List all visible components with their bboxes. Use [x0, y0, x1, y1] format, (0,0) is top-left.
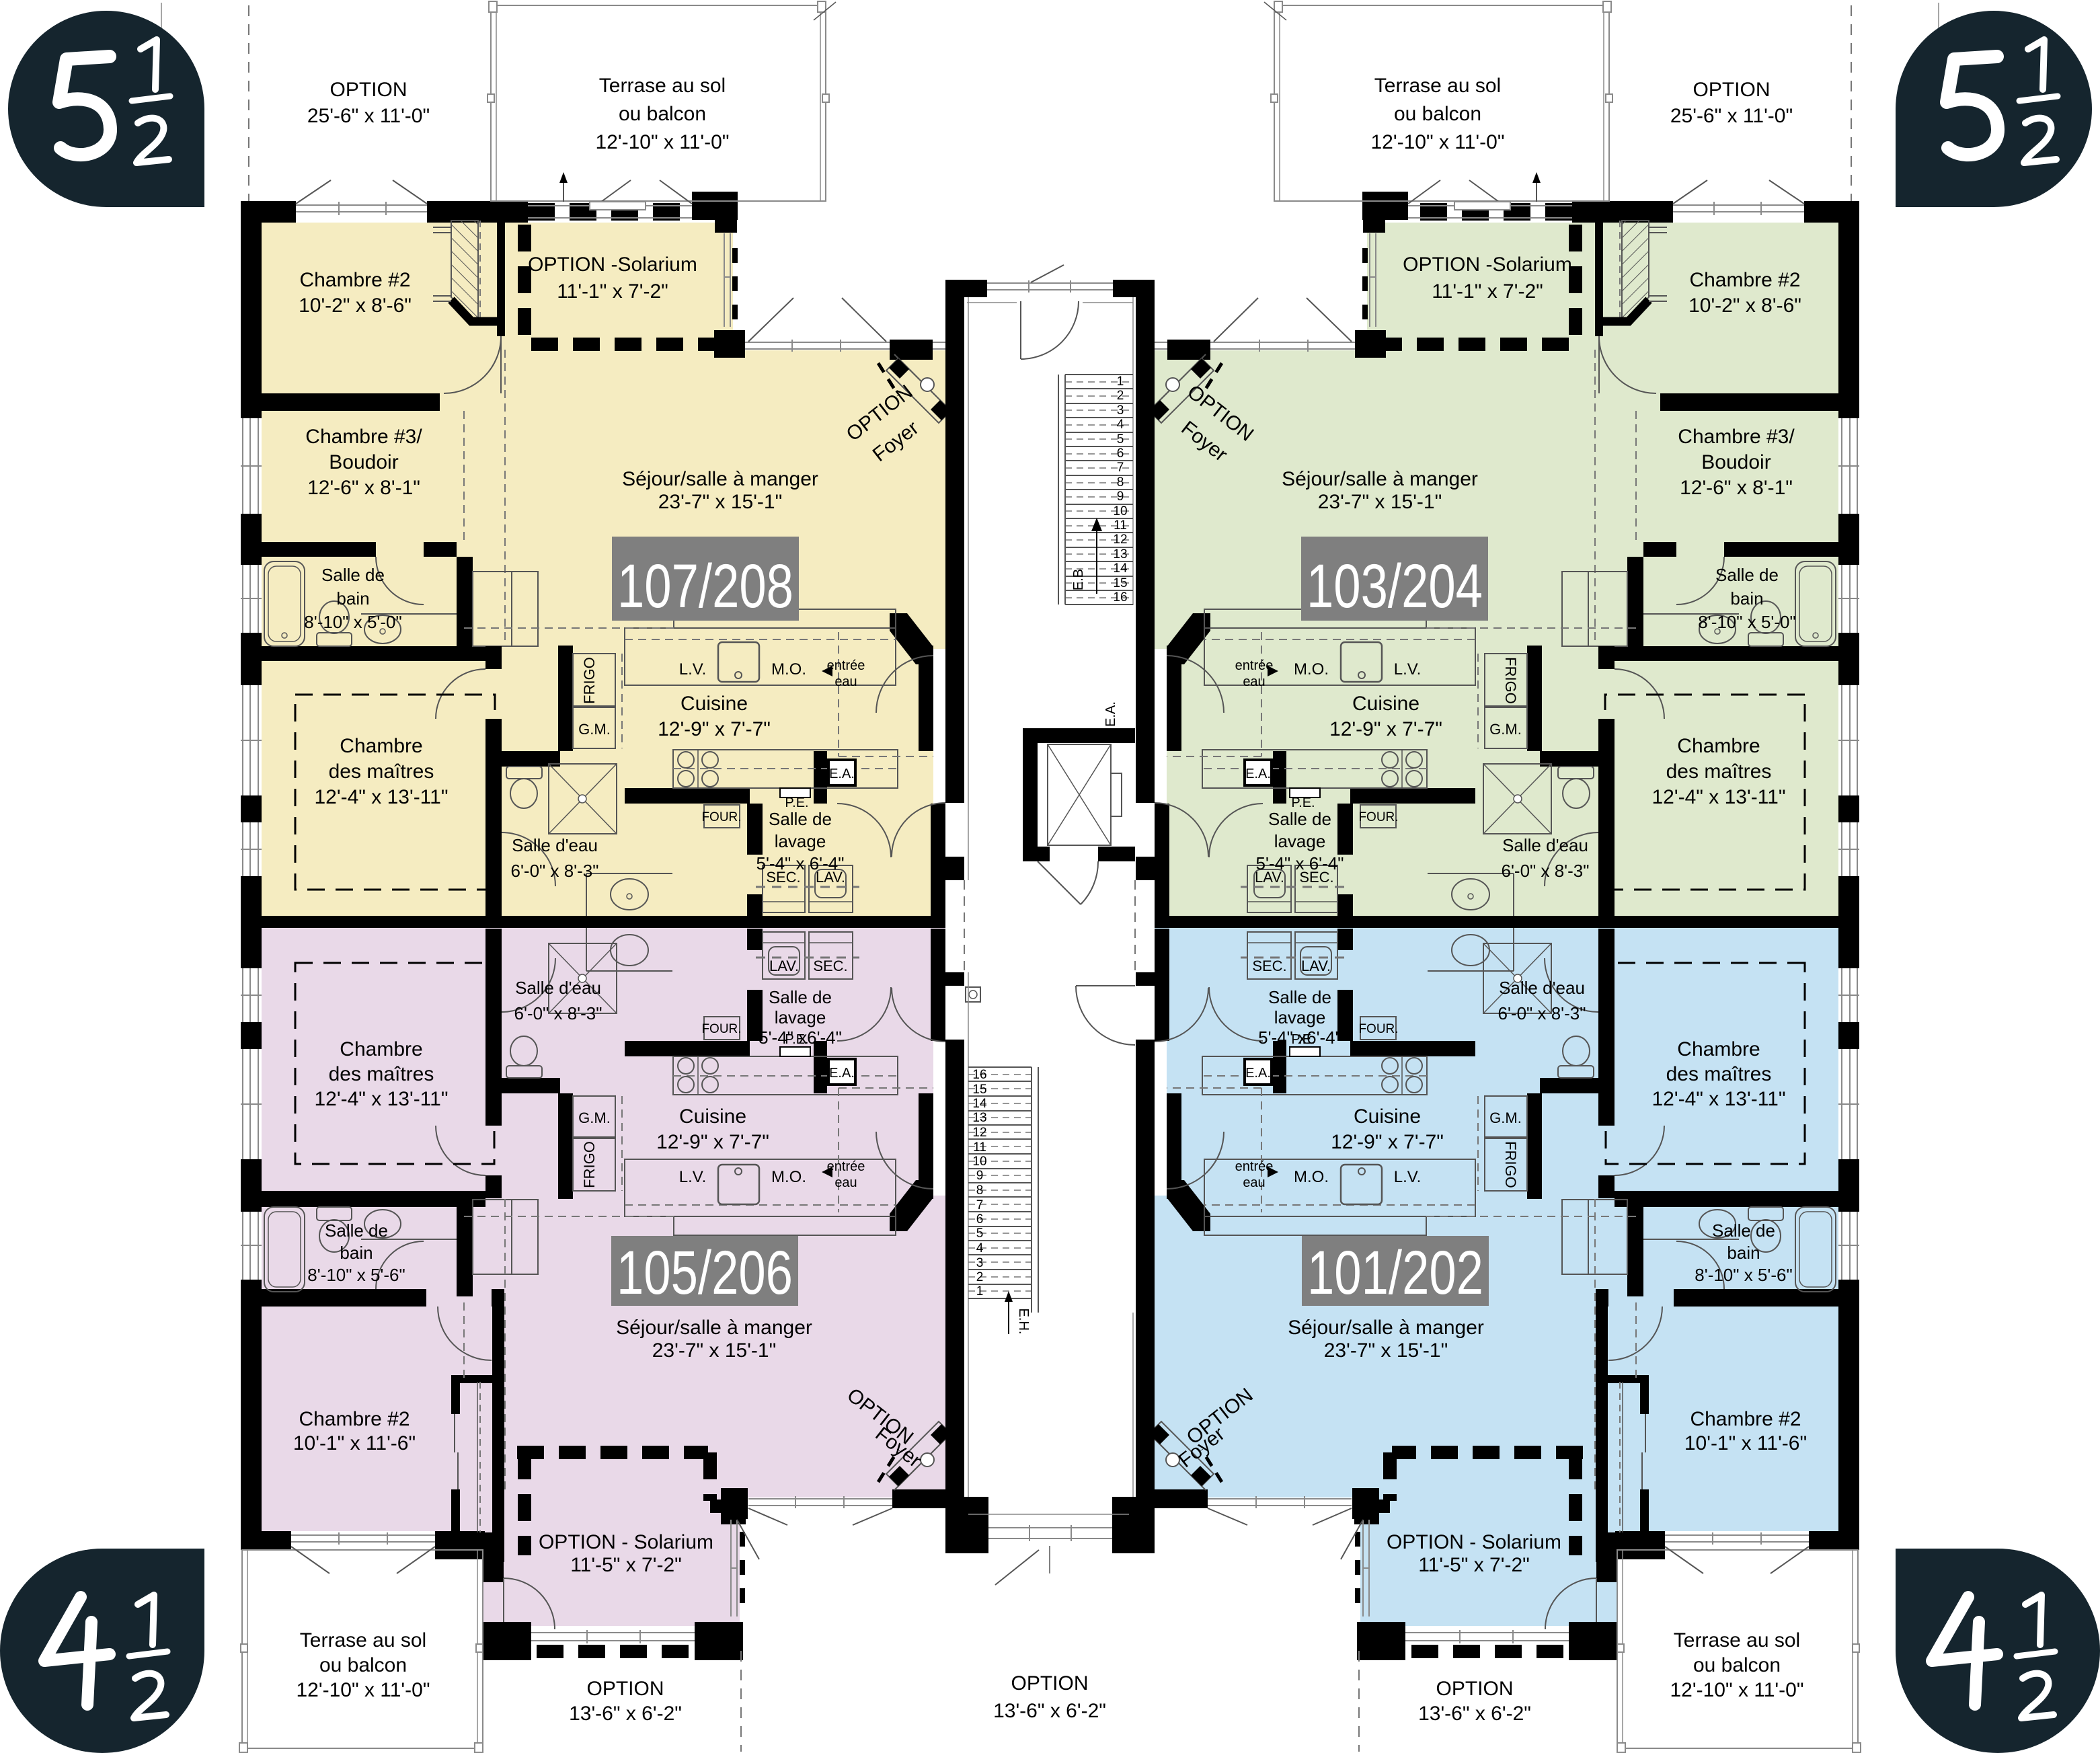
- svg-text:Chambre #3/: Chambre #3/: [1678, 426, 1795, 448]
- svg-text:23'-7" x 15'-1": 23'-7" x 15'-1": [1318, 491, 1442, 513]
- svg-text:bain: bain: [1730, 588, 1763, 609]
- svg-text:23'-7" x 15'-1": 23'-7" x 15'-1": [658, 491, 783, 513]
- svg-text:4: 4: [976, 1241, 984, 1255]
- svg-text:12: 12: [972, 1126, 986, 1140]
- svg-text:eau: eau: [1243, 674, 1265, 689]
- svg-text:9: 9: [976, 1169, 984, 1183]
- svg-text:LAV.: LAV.: [816, 869, 845, 886]
- svg-text:Chambre #2: Chambre #2: [299, 1408, 410, 1430]
- svg-text:2: 2: [976, 1270, 984, 1284]
- svg-text:3: 3: [1117, 403, 1124, 418]
- svg-text:12'-4" x 13'-11": 12'-4" x 13'-11": [1652, 786, 1786, 808]
- svg-text:15: 15: [1113, 576, 1127, 590]
- svg-text:G.M.: G.M.: [1489, 721, 1522, 738]
- svg-text:5: 5: [1117, 432, 1124, 446]
- svg-text:13: 13: [972, 1111, 986, 1125]
- svg-text:OPTION - Solarium: OPTION - Solarium: [1387, 1531, 1561, 1553]
- svg-text:E.B: E.B: [1071, 569, 1086, 590]
- svg-text:25'-6" x 11'-0": 25'-6" x 11'-0": [1670, 105, 1793, 127]
- svg-text:Salle de: Salle de: [325, 1220, 388, 1241]
- svg-text:12'-9" x 7'-7": 12'-9" x 7'-7": [658, 718, 771, 740]
- svg-text:Séjour/salle à manger: Séjour/salle à manger: [616, 1317, 812, 1339]
- svg-text:FRIGO: FRIGO: [1502, 657, 1519, 704]
- svg-text:lavage: lavage: [1274, 831, 1326, 851]
- svg-text:3: 3: [976, 1256, 984, 1270]
- svg-text:M.O.: M.O.: [1294, 660, 1329, 678]
- svg-text:Boudoir: Boudoir: [329, 451, 398, 473]
- svg-text:7: 7: [1117, 461, 1124, 475]
- svg-text:FOUR.: FOUR.: [701, 810, 741, 824]
- svg-text:ou balcon: ou balcon: [319, 1654, 407, 1676]
- svg-text:E.A.: E.A.: [829, 767, 855, 781]
- svg-text:8: 8: [1117, 475, 1124, 490]
- svg-text:4: 4: [1117, 418, 1124, 432]
- svg-text:11: 11: [973, 1140, 986, 1155]
- svg-text:eau: eau: [1243, 1175, 1265, 1190]
- svg-text:Chambre: Chambre: [340, 735, 422, 757]
- svg-text:12'-9" x 7'-7": 12'-9" x 7'-7": [656, 1131, 769, 1153]
- svg-text:OPTION: OPTION: [329, 79, 407, 101]
- svg-text:Cuisine: Cuisine: [1352, 693, 1420, 715]
- svg-text:6'-0" x 8'-3": 6'-0" x 8'-3": [1502, 861, 1590, 881]
- svg-text:P.E.: P.E.: [1291, 795, 1315, 810]
- svg-text:105/206: 105/206: [617, 1239, 793, 1307]
- svg-text:Séjour/salle à manger: Séjour/salle à manger: [1282, 468, 1478, 490]
- svg-text:FOUR.: FOUR.: [1358, 810, 1398, 824]
- svg-text:Cuisine: Cuisine: [680, 693, 748, 715]
- svg-text:12'-9" x 7'-7": 12'-9" x 7'-7": [1329, 718, 1442, 740]
- svg-text:107/208: 107/208: [617, 552, 793, 621]
- svg-text:15: 15: [972, 1083, 986, 1097]
- svg-text:OPTION - Solarium: OPTION - Solarium: [539, 1531, 713, 1553]
- svg-text:12'-4" x 13'-11": 12'-4" x 13'-11": [1652, 1088, 1786, 1110]
- svg-text:12'-6" x 8'-1": 12'-6" x 8'-1": [1680, 477, 1793, 499]
- svg-text:M.O.: M.O.: [771, 1168, 806, 1186]
- svg-text:OPTION: OPTION: [1693, 79, 1770, 101]
- svg-text:des maîtres: des maîtres: [329, 1063, 434, 1085]
- svg-text:1: 1: [1117, 375, 1124, 389]
- svg-text:OPTION: OPTION: [586, 1678, 664, 1700]
- svg-text:Terrase au sol: Terrase au sol: [1374, 75, 1501, 97]
- svg-text:25'-6" x 11'-0": 25'-6" x 11'-0": [307, 105, 430, 127]
- svg-text:6: 6: [1117, 446, 1124, 461]
- svg-text:12'-4" x 13'-11": 12'-4" x 13'-11": [315, 1088, 449, 1110]
- svg-text:SEC.: SEC.: [813, 958, 847, 974]
- svg-text:16: 16: [1113, 590, 1127, 605]
- svg-text:12'-4" x 13'-11": 12'-4" x 13'-11": [315, 786, 449, 808]
- svg-text:L.V.: L.V.: [679, 660, 707, 678]
- svg-text:ou balcon: ou balcon: [1693, 1654, 1781, 1676]
- svg-text:LAV.: LAV.: [1301, 958, 1331, 974]
- svg-text:G.M.: G.M.: [578, 1109, 611, 1126]
- svg-text:8'-10" x 5'-6": 8'-10" x 5'-6": [1695, 1265, 1792, 1285]
- svg-text:5: 5: [976, 1226, 984, 1241]
- svg-text:8'-10" x 5'-6": 8'-10" x 5'-6": [307, 1265, 405, 1285]
- svg-text:G.M.: G.M.: [1489, 1109, 1522, 1126]
- svg-text:Chambre: Chambre: [1677, 1038, 1760, 1060]
- svg-text:OPTION: OPTION: [1436, 1678, 1513, 1700]
- svg-text:M.O.: M.O.: [771, 660, 806, 678]
- svg-text:Boudoir: Boudoir: [1701, 451, 1771, 473]
- svg-text:12'-10" x 11'-0": 12'-10" x 11'-0": [1371, 131, 1505, 153]
- svg-text:bain: bain: [1727, 1243, 1760, 1263]
- svg-text:LAV.: LAV.: [769, 958, 799, 974]
- svg-text:10: 10: [972, 1155, 986, 1169]
- svg-text:Chambre: Chambre: [340, 1038, 422, 1060]
- svg-text:6'-0" x 8'-3": 6'-0" x 8'-3": [514, 1003, 602, 1023]
- svg-text:Salle d'eau: Salle d'eau: [1502, 835, 1588, 855]
- svg-text:P.E.: P.E.: [785, 795, 808, 810]
- svg-text:L.V.: L.V.: [1394, 1168, 1422, 1186]
- svg-text:101/202: 101/202: [1307, 1239, 1483, 1307]
- svg-text:Salle de: Salle de: [769, 809, 832, 829]
- svg-text:Chambre #2: Chambre #2: [1689, 269, 1800, 291]
- svg-text:FRIGO: FRIGO: [581, 1141, 598, 1188]
- svg-text:23'-7" x 15'-1": 23'-7" x 15'-1": [652, 1339, 777, 1362]
- svg-text:13'-6" x 6'-2": 13'-6" x 6'-2": [1418, 1703, 1531, 1725]
- svg-text:SEC.: SEC.: [766, 869, 800, 886]
- svg-text:Chambre #2: Chambre #2: [299, 269, 410, 291]
- svg-text:7: 7: [976, 1198, 984, 1212]
- svg-text:11: 11: [1114, 518, 1127, 533]
- svg-text:LAV.: LAV.: [1255, 869, 1284, 886]
- svg-text:13: 13: [1113, 547, 1127, 561]
- svg-text:Chambre: Chambre: [1677, 735, 1760, 757]
- svg-text:L.V.: L.V.: [679, 1168, 707, 1186]
- svg-text:Salle de: Salle de: [1268, 987, 1331, 1007]
- svg-text:E.A.: E.A.: [1245, 767, 1271, 781]
- svg-text:11'-1" x 7'-2": 11'-1" x 7'-2": [1432, 280, 1543, 303]
- svg-text:E.A.: E.A.: [1103, 701, 1118, 727]
- svg-text:eau: eau: [834, 1175, 857, 1190]
- svg-text:M.O.: M.O.: [1294, 1168, 1329, 1186]
- svg-text:lavage: lavage: [775, 1007, 826, 1027]
- svg-text:10'-1" x 11'-6": 10'-1" x 11'-6": [293, 1432, 416, 1454]
- svg-text:E.A.: E.A.: [829, 1066, 855, 1081]
- svg-text:bain: bain: [336, 588, 369, 609]
- svg-text:OPTION -Solarium: OPTION -Solarium: [1403, 254, 1572, 276]
- svg-text:16: 16: [972, 1068, 986, 1082]
- svg-text:13'-6" x 6'-2": 13'-6" x 6'-2": [569, 1703, 682, 1725]
- svg-text:Salle de: Salle de: [1715, 565, 1779, 585]
- svg-text:P.E.: P.E.: [1291, 1032, 1315, 1047]
- svg-text:lavage: lavage: [1274, 1007, 1326, 1027]
- svg-text:23'-7" x 15'-1": 23'-7" x 15'-1": [1324, 1339, 1448, 1362]
- svg-text:Salle de: Salle de: [321, 565, 385, 585]
- svg-text:12'-10" x 11'-0": 12'-10" x 11'-0": [596, 131, 730, 153]
- svg-text:des maîtres: des maîtres: [1666, 1063, 1772, 1085]
- svg-text:10: 10: [1113, 504, 1127, 518]
- svg-text:10'-2" x 8'-6": 10'-2" x 8'-6": [1688, 295, 1801, 317]
- svg-text:12'-10" x 11'-0": 12'-10" x 11'-0": [1670, 1679, 1804, 1701]
- svg-text:SEC.: SEC.: [1299, 869, 1333, 886]
- svg-text:2: 2: [1117, 389, 1124, 403]
- svg-text:G.M.: G.M.: [578, 721, 611, 738]
- svg-text:12: 12: [1113, 533, 1127, 547]
- svg-text:Terrase au sol: Terrase au sol: [1674, 1629, 1800, 1651]
- svg-text:Salle d'eau: Salle d'eau: [512, 835, 598, 855]
- svg-text:11'-1" x 7'-2": 11'-1" x 7'-2": [557, 280, 668, 303]
- svg-text:Salle de: Salle de: [1268, 809, 1331, 829]
- svg-text:14: 14: [972, 1097, 987, 1111]
- svg-text:Terrase au sol: Terrase au sol: [300, 1629, 426, 1651]
- svg-text:Séjour/salle à manger: Séjour/salle à manger: [1288, 1317, 1484, 1339]
- svg-text:lavage: lavage: [775, 831, 826, 851]
- svg-text:E.H.: E.H.: [1016, 1309, 1031, 1335]
- svg-text:8'-10" x 5'-0": 8'-10" x 5'-0": [1698, 612, 1795, 632]
- svg-text:8'-10" x 5'-0": 8'-10" x 5'-0": [304, 612, 401, 632]
- svg-text:Salle d'eau: Salle d'eau: [515, 978, 601, 998]
- svg-text:6: 6: [976, 1212, 984, 1226]
- svg-text:Séjour/salle à manger: Séjour/salle à manger: [622, 468, 818, 490]
- svg-text:OPTION: OPTION: [1011, 1672, 1088, 1694]
- svg-text:14: 14: [1113, 561, 1128, 576]
- svg-text:entrée: entrée: [827, 1159, 865, 1174]
- svg-text:FOUR.: FOUR.: [1358, 1022, 1398, 1036]
- svg-text:10'-2" x 8'-6": 10'-2" x 8'-6": [299, 295, 412, 317]
- svg-text:Chambre #3/: Chambre #3/: [305, 426, 422, 448]
- svg-text:9: 9: [1117, 490, 1124, 504]
- svg-text:12'-9" x 7'-7": 12'-9" x 7'-7": [1331, 1131, 1444, 1153]
- svg-text:ou balcon: ou balcon: [619, 103, 706, 125]
- svg-text:12'-10" x 11'-0": 12'-10" x 11'-0": [297, 1679, 430, 1701]
- svg-text:FOUR.: FOUR.: [701, 1022, 741, 1036]
- svg-text:des maîtres: des maîtres: [329, 761, 434, 783]
- svg-text:Salle d'eau: Salle d'eau: [1499, 978, 1585, 998]
- svg-text:6'-0" x 8'-3": 6'-0" x 8'-3": [511, 861, 599, 881]
- svg-text:SEC.: SEC.: [1252, 958, 1286, 974]
- svg-text:1: 1: [976, 1284, 984, 1298]
- svg-text:eau: eau: [834, 674, 857, 689]
- svg-text:FRIGO: FRIGO: [1502, 1141, 1519, 1188]
- svg-text:8: 8: [976, 1183, 984, 1198]
- svg-text:OPTION -Solarium: OPTION -Solarium: [528, 254, 697, 276]
- svg-text:Salle de: Salle de: [769, 987, 832, 1007]
- svg-text:P.E.: P.E.: [785, 1032, 808, 1047]
- svg-text:FRIGO: FRIGO: [581, 657, 598, 704]
- svg-text:Cuisine: Cuisine: [1354, 1105, 1421, 1128]
- svg-text:Chambre #2: Chambre #2: [1690, 1408, 1801, 1430]
- svg-text:L.V.: L.V.: [1394, 660, 1422, 678]
- svg-text:Salle de: Salle de: [1712, 1220, 1775, 1241]
- svg-text:103/204: 103/204: [1307, 552, 1483, 621]
- svg-text:bain: bain: [340, 1243, 373, 1263]
- svg-text:13'-6" x 6'-2": 13'-6" x 6'-2": [993, 1700, 1106, 1722]
- svg-text:entrée: entrée: [827, 658, 865, 673]
- svg-text:des maîtres: des maîtres: [1666, 761, 1772, 783]
- svg-text:entrée: entrée: [1235, 658, 1274, 673]
- svg-text:10'-1" x 11'-6": 10'-1" x 11'-6": [1684, 1432, 1807, 1454]
- svg-text:6'-0" x 8'-3": 6'-0" x 8'-3": [1498, 1003, 1586, 1023]
- svg-text:11'-5" x 7'-2": 11'-5" x 7'-2": [570, 1554, 682, 1576]
- svg-text:entrée: entrée: [1235, 1159, 1274, 1174]
- svg-text:12'-6" x 8'-1": 12'-6" x 8'-1": [307, 477, 420, 499]
- svg-text:11'-5" x 7'-2": 11'-5" x 7'-2": [1418, 1554, 1530, 1576]
- svg-text:Terrase au sol: Terrase au sol: [599, 75, 726, 97]
- svg-text:ou balcon: ou balcon: [1394, 103, 1481, 125]
- svg-text:E.A.: E.A.: [1245, 1066, 1271, 1081]
- svg-text:Cuisine: Cuisine: [679, 1105, 746, 1128]
